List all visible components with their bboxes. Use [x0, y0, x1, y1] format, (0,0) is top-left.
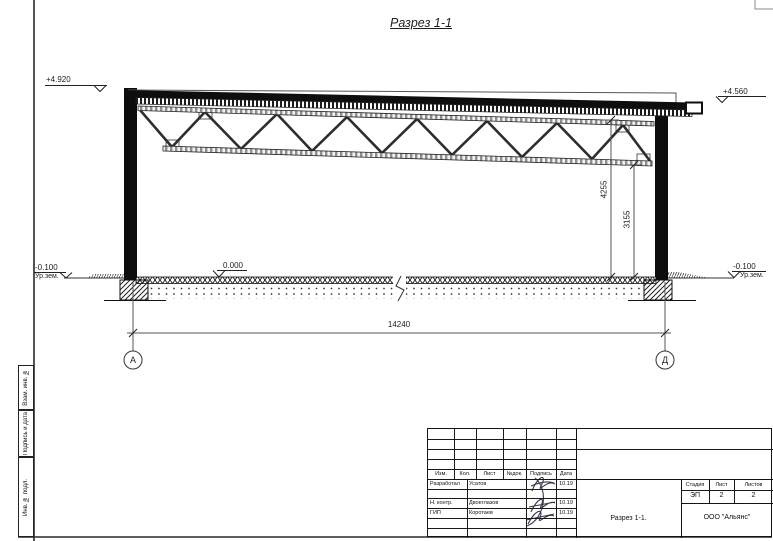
document-name: Разрез 1-1. — [576, 515, 681, 522]
floor — [136, 275, 656, 301]
corner-mark — [755, 0, 773, 9]
sheets-total: 2 — [734, 492, 773, 499]
drawing-title: Разрез 1-1 — [351, 16, 491, 30]
title-block: Изм. Кол. Лист №док. Подпись Дата Разраб… — [427, 428, 772, 537]
truss-bottom-chord — [163, 146, 652, 166]
right-column — [655, 104, 668, 280]
margin-cell-vzam: Взам. инв. № — [18, 365, 34, 410]
elevation-ground-right: -0.100 — [733, 262, 756, 271]
elevation-symbol-roof-right — [716, 97, 766, 103]
sheet-number: 2 — [709, 492, 734, 499]
margin-cell-inv: Инв. № подл. — [18, 457, 34, 537]
drawing-sheet: Разрез 1-1 +4.920 +4.560 0.000 -0.100 Ур… — [0, 0, 773, 541]
margin-label-inv: Инв. № подл. — [23, 479, 29, 516]
margin-label-vzam: Взам. инв. № — [23, 369, 29, 406]
elevation-roof-left: +4.920 — [46, 75, 71, 84]
dimension-span: 14240 — [376, 320, 422, 329]
elevation-symbol-floor — [213, 271, 247, 278]
signature-dvoeglazov — [529, 499, 555, 512]
stage-value: ЭП — [681, 492, 709, 499]
elevation-ground-left-label: Ур.зем. — [35, 273, 59, 280]
stage-header: Стадия — [681, 482, 709, 488]
sheets-header: Листов — [734, 482, 773, 488]
dimension-4255: 4255 — [600, 175, 609, 205]
elevation-ground-right-label: Ур.зем. — [740, 272, 764, 279]
right-foundation — [644, 280, 672, 300]
margin-cell-podpis: Подпись и дата — [18, 410, 34, 457]
dimension-3155: 3155 — [623, 205, 632, 235]
elevation-roof-right: +4.560 — [723, 87, 748, 96]
axis-label-left: А — [125, 355, 141, 365]
signature-usatov — [531, 477, 555, 491]
elevation-symbol-roof-left — [45, 86, 107, 92]
company-name: ООО "Альянс" — [681, 514, 773, 521]
roof-end-cap — [686, 103, 702, 114]
left-foundation — [120, 280, 148, 300]
axis-label-right: Д — [657, 355, 673, 365]
sheet-header: Лист — [709, 482, 734, 488]
left-column — [124, 88, 137, 280]
elevation-floor: 0.000 — [218, 261, 248, 270]
elevation-ground-left: -0.100 — [35, 263, 58, 272]
margin-label-podpis: Подпись и дата — [23, 412, 29, 455]
